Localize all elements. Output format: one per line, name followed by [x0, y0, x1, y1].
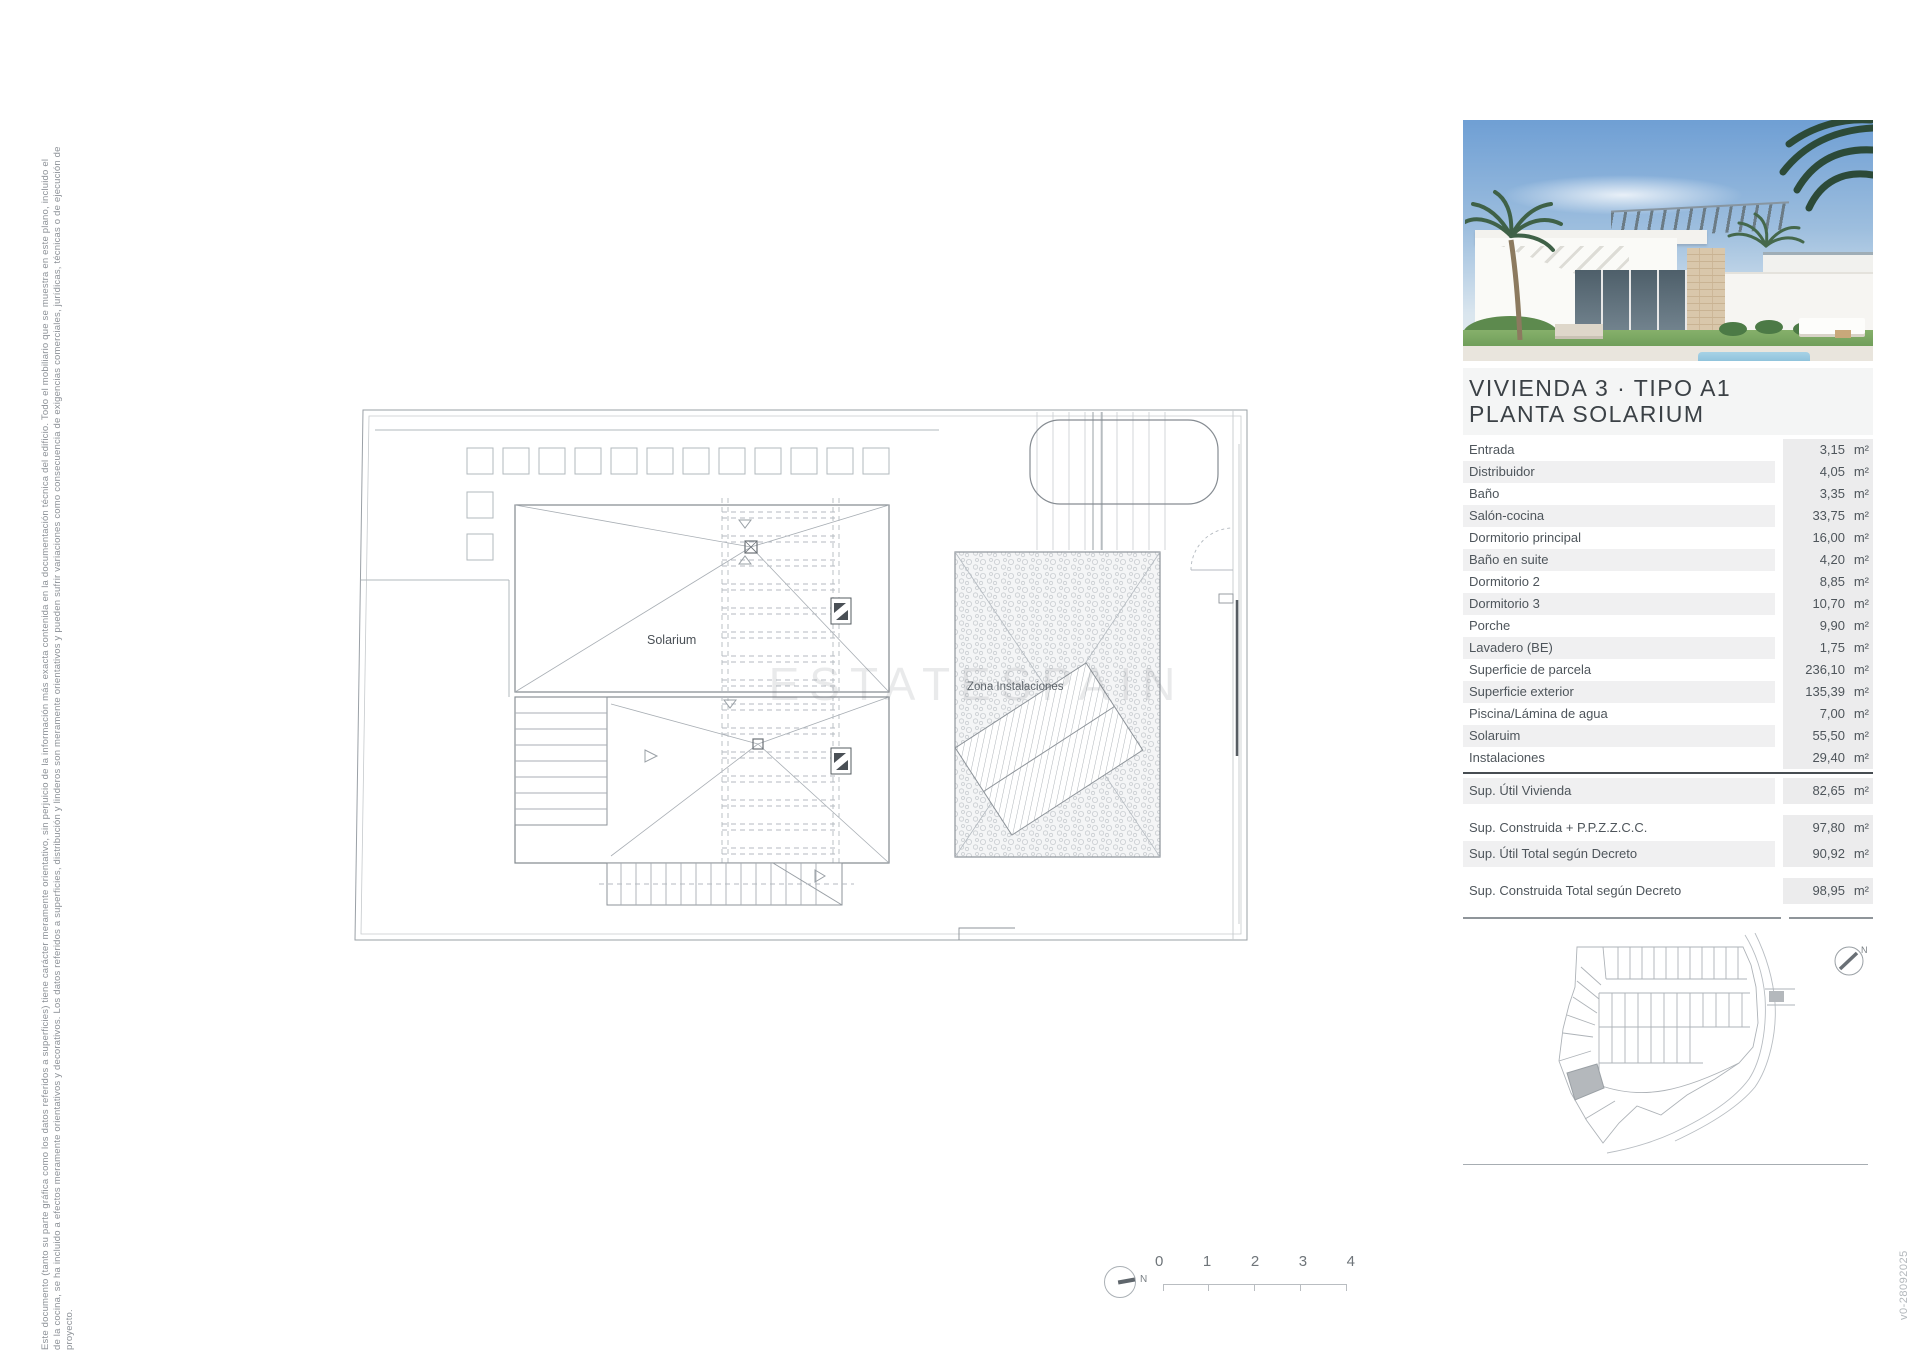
footer-rule: [1463, 1164, 1868, 1165]
row-value: 10,70m²: [1783, 593, 1873, 615]
row-label: Piscina/Lámina de agua: [1463, 703, 1775, 725]
scale-tick-label: 4: [1347, 1253, 1355, 1270]
site-map: N: [1463, 933, 1873, 1165]
row-value: 29,40m²: [1783, 747, 1873, 769]
deck-spa: [1030, 412, 1218, 550]
site-compass: N: [1835, 945, 1868, 975]
scale-bar-line: [1163, 1284, 1347, 1285]
solarium-label: Solarium: [647, 633, 696, 647]
spacer: [1463, 867, 1873, 878]
table-row: Sup. Útil Vivienda82,65m²: [1463, 778, 1873, 804]
row-label: Solaruim: [1463, 725, 1775, 747]
row-value: 97,80m²: [1783, 815, 1873, 841]
disclaimer-line: proyecto.: [64, 20, 76, 1350]
row-label: Lavadero (BE): [1463, 637, 1775, 659]
hero-photo: [1463, 120, 1873, 361]
table-row: Dormitorio 310,70m²: [1463, 593, 1873, 615]
road-marker: [1769, 991, 1784, 1002]
shrub: [1755, 320, 1783, 334]
table-row: Solaruim55,50m²: [1463, 725, 1873, 747]
table-row: Sup. Construida + P.P.Z.Z.C.C.97,80m²: [1463, 815, 1873, 841]
outdoor-sofa: [1799, 318, 1865, 334]
disclaimer-line: Este documento (tanto su parte gráfica c…: [40, 20, 52, 1350]
row-label: Dormitorio 3: [1463, 593, 1775, 615]
floor-plan-drawing: Solarium: [349, 404, 1255, 949]
table-row: Sup. Construida Total según Decreto98,95…: [1463, 878, 1873, 904]
watermark-text: ESTATESPAIN: [769, 658, 1186, 710]
row-label: Sup. Útil Total según Decreto: [1463, 841, 1775, 867]
shrub: [1719, 322, 1747, 336]
row-label: Instalaciones: [1463, 747, 1775, 769]
row-label: Baño en suite: [1463, 549, 1775, 571]
terrace: [1463, 346, 1873, 361]
row-value: 8,85m²: [1783, 571, 1873, 593]
plan-version-label: v0-28092025: [1898, 1200, 1910, 1320]
scale-tick-label: 0: [1155, 1253, 1163, 1270]
compass-north-label: N: [1140, 1274, 1147, 1285]
row-label: Entrada: [1463, 439, 1775, 461]
row-value: 90,92m²: [1783, 841, 1873, 867]
table-row: Entrada3,15m²: [1463, 439, 1873, 461]
disclaimer-line: de la cocina, se ha incluido a efectos m…: [52, 20, 64, 1350]
row-value: 7,00m²: [1783, 703, 1873, 725]
table-row: Salón-cocina33,75m²: [1463, 505, 1873, 527]
areas-table: Entrada3,15m²Distribuidor4,05m²Baño3,35m…: [1463, 439, 1873, 904]
row-value: 3,15m²: [1783, 439, 1873, 461]
row-value: 236,10m²: [1783, 659, 1873, 681]
title-block: VIVIENDA 3 · TIPO A1 PLANTA SOLARIUM: [1463, 368, 1873, 435]
table-row: Dormitorio 28,85m²: [1463, 571, 1873, 593]
row-label: Salón-cocina: [1463, 505, 1775, 527]
scale-tick-label: 3: [1299, 1253, 1307, 1270]
row-label: Dormitorio principal: [1463, 527, 1775, 549]
palm-tree-icon: [1465, 170, 1585, 340]
site-north-label: N: [1861, 945, 1868, 955]
table-row: Superficie de parcela236,10m²: [1463, 659, 1873, 681]
scale-tick-label: 1: [1203, 1253, 1211, 1270]
page-title-line2: PLANTA SOLARIUM: [1469, 401, 1869, 427]
row-value: 98,95m²: [1783, 878, 1873, 904]
palm-fronds-icon: [1723, 120, 1873, 240]
legal-disclaimer: Este documento (tanto su parte gráfica c…: [40, 20, 76, 1350]
row-label: Distribuidor: [1463, 461, 1775, 483]
row-label: Porche: [1463, 615, 1775, 637]
row-value: 16,00m²: [1783, 527, 1873, 549]
row-value: 3,35m²: [1783, 483, 1873, 505]
row-value: 1,75m²: [1783, 637, 1873, 659]
info-panel: VIVIENDA 3 · TIPO A1 PLANTA SOLARIUM Ent…: [1463, 120, 1873, 1165]
row-value: 33,75m²: [1783, 505, 1873, 527]
row-value: 135,39m²: [1783, 681, 1873, 703]
row-label: Superficie exterior: [1463, 681, 1775, 703]
row-value: 55,50m²: [1783, 725, 1873, 747]
table-underline: [1463, 917, 1873, 919]
scale-bar-numbers: 0 1 2 3 4: [1155, 1253, 1355, 1270]
row-label: Sup. Construida + P.P.Z.Z.C.C.: [1463, 815, 1775, 841]
table-row: Superficie exterior135,39m²: [1463, 681, 1873, 703]
row-value: 4,20m²: [1783, 549, 1873, 571]
table-row: Porche9,90m²: [1463, 615, 1873, 637]
row-value: 82,65m²: [1783, 778, 1873, 804]
row-value: 4,05m²: [1783, 461, 1873, 483]
page-title-line1: VIVIENDA 3 · TIPO A1: [1469, 375, 1869, 401]
row-label: Sup. Útil Vivienda: [1463, 778, 1775, 804]
table-row: Lavadero (BE)1,75m²: [1463, 637, 1873, 659]
table-row: Baño3,35m²: [1463, 483, 1873, 505]
row-label: Superficie de parcela: [1463, 659, 1775, 681]
north-compass: N: [1104, 1266, 1136, 1298]
side-table: [1835, 330, 1851, 338]
row-label: Baño: [1463, 483, 1775, 505]
plan-sheet: { "disclaimer": { "lines": [ "Este docum…: [0, 0, 1920, 1357]
table-row: Piscina/Lámina de agua7,00m²: [1463, 703, 1873, 725]
table-row: Sup. Útil Total según Decreto90,92m²: [1463, 841, 1873, 867]
highlighted-lot: [1567, 1064, 1604, 1100]
spacer: [1463, 804, 1873, 815]
row-label: Sup. Construida Total según Decreto: [1463, 878, 1775, 904]
row-label: Dormitorio 2: [1463, 571, 1775, 593]
totals-divider: [1463, 772, 1873, 774]
compass-needle-icon: [1118, 1278, 1135, 1285]
exterior-stairs: [599, 863, 854, 905]
table-row: Distribuidor4,05m²: [1463, 461, 1873, 483]
row-value: 9,90m²: [1783, 615, 1873, 637]
scale-tick-label: 2: [1251, 1253, 1259, 1270]
table-row: Instalaciones29,40m²: [1463, 747, 1873, 769]
table-row: Baño en suite4,20m²: [1463, 549, 1873, 571]
site-map-svg: N: [1463, 933, 1873, 1155]
floor-plan-svg: Solarium: [349, 404, 1255, 949]
table-row: Dormitorio principal16,00m²: [1463, 527, 1873, 549]
pool: [1698, 352, 1810, 361]
